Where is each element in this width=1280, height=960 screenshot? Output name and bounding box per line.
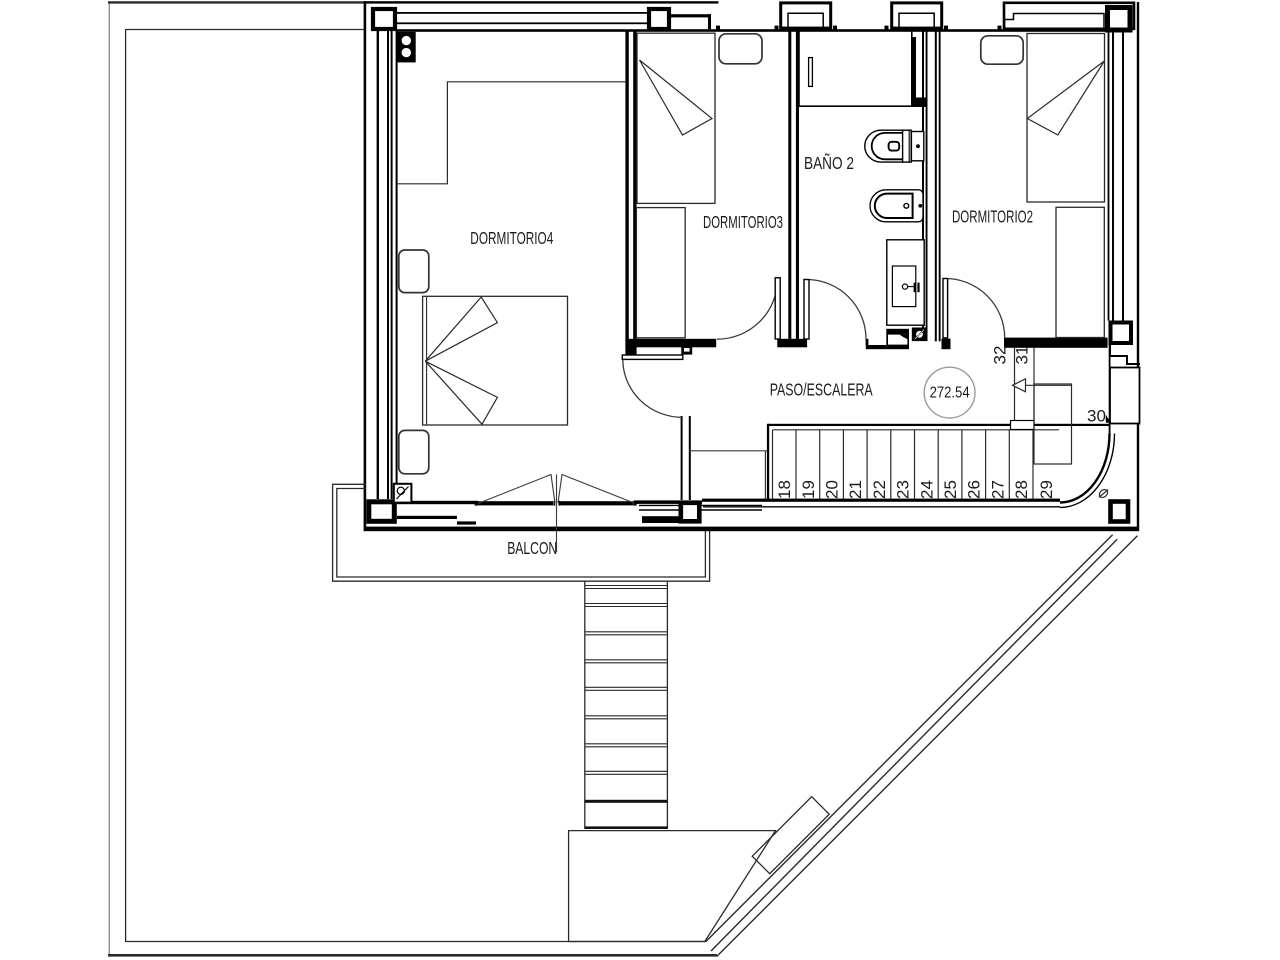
- svg-text:DORMITORIO3: DORMITORIO3: [703, 212, 783, 232]
- svg-text:26: 26: [965, 480, 984, 499]
- svg-text:24: 24: [917, 480, 936, 499]
- svg-text:23: 23: [894, 480, 913, 499]
- svg-text:DORMITORIO2: DORMITORIO2: [952, 207, 1033, 227]
- svg-text:20: 20: [823, 480, 842, 499]
- svg-text:19: 19: [799, 480, 818, 499]
- svg-text:22: 22: [870, 480, 889, 499]
- svg-text:31: 31: [1013, 346, 1032, 365]
- svg-text:18: 18: [775, 480, 794, 499]
- svg-text:28: 28: [1012, 480, 1031, 499]
- svg-text:272.54: 272.54: [930, 385, 970, 402]
- svg-text:30: 30: [1087, 407, 1106, 426]
- svg-text:25: 25: [941, 480, 960, 499]
- svg-text:DORMITORIO4: DORMITORIO4: [470, 228, 553, 248]
- svg-text:BALCON: BALCON: [507, 538, 557, 558]
- svg-text:21: 21: [846, 480, 865, 499]
- svg-text:32: 32: [991, 346, 1010, 365]
- svg-text:29: 29: [1037, 480, 1056, 499]
- svg-text:PASO/ESCALERA: PASO/ESCALERA: [770, 380, 873, 400]
- svg-text:27: 27: [988, 480, 1007, 499]
- svg-text:BAÑO 2: BAÑO 2: [804, 152, 854, 173]
